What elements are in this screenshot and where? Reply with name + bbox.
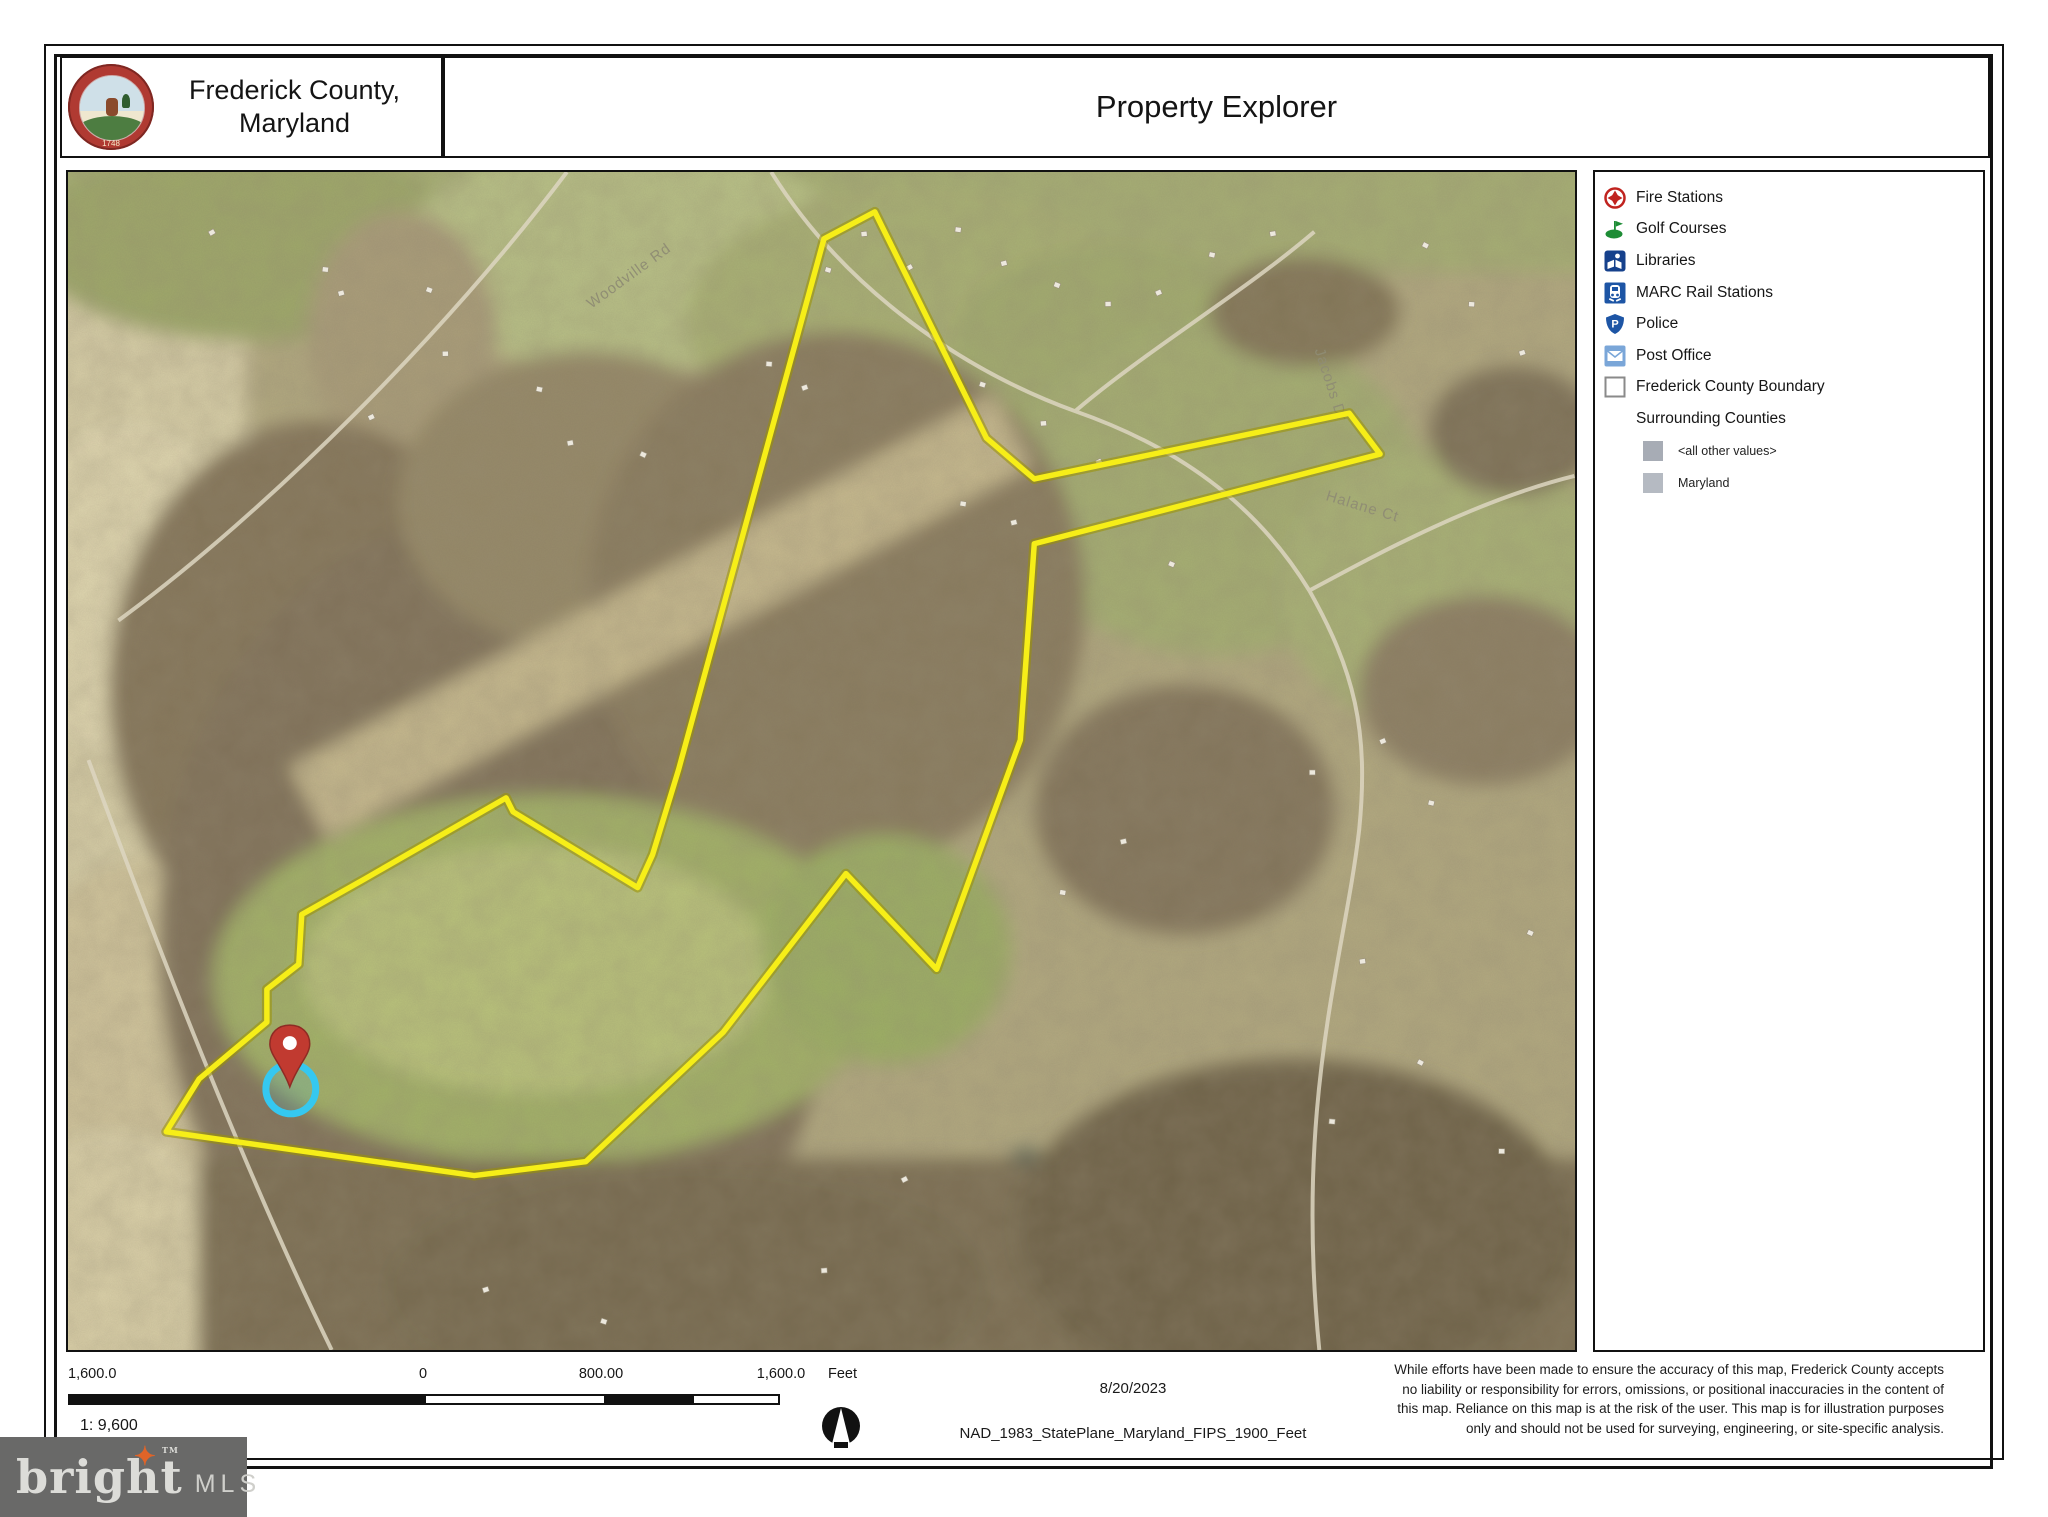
seal-year: 1748 bbox=[68, 139, 154, 148]
golf-courses-icon bbox=[1603, 217, 1627, 241]
location-pin bbox=[266, 1025, 316, 1114]
county-boundary-icon bbox=[1603, 375, 1627, 399]
legend-item-golf-courses: Golf Courses bbox=[1603, 214, 1983, 246]
mls-suffix: MLS bbox=[195, 1470, 261, 1499]
legend-panel: Fire Stations Golf Courses Libraries bbox=[1593, 170, 1985, 1352]
legend-subitem-all-other-values: <all other values> bbox=[1603, 435, 1983, 467]
scale-label-800: 800.00 bbox=[561, 1366, 641, 1382]
scale-bar-segment bbox=[604, 1396, 693, 1403]
legend-item-fire-stations: Fire Stations bbox=[1603, 182, 1983, 214]
maryland-swatch bbox=[1643, 473, 1663, 493]
star-icon: ✦ bbox=[134, 1444, 157, 1470]
page-title: Property Explorer bbox=[1096, 89, 1337, 125]
header-title-box: Property Explorer bbox=[443, 56, 1990, 158]
disclaimer-text: While efforts have been made to ensure t… bbox=[1384, 1360, 1944, 1438]
county-seal-icon: 1748 bbox=[68, 64, 154, 150]
trademark-symbol: TM bbox=[162, 1446, 179, 1454]
scale-label-1600: 1,600.0 bbox=[731, 1366, 831, 1382]
scale-unit-label: Feet bbox=[828, 1366, 857, 1382]
bright-mls-wordmark: bright ✦ TM bbox=[16, 1454, 183, 1500]
svg-text:P: P bbox=[1611, 319, 1618, 331]
scale-label-zero: 0 bbox=[403, 1366, 443, 1382]
police-icon: P bbox=[1603, 312, 1627, 336]
post-office-icon bbox=[1603, 344, 1627, 368]
legend-item-police: P Police bbox=[1603, 308, 1983, 340]
property-explorer-page: 1748 Frederick County, Maryland Property… bbox=[0, 0, 2048, 1517]
fire-stations-icon bbox=[1603, 186, 1627, 210]
legend-subitem-maryland: Maryland bbox=[1603, 467, 1983, 499]
scale-bar-segment bbox=[692, 1396, 778, 1403]
projection-text: NAD_1983_StatePlane_Maryland_FIPS_1900_F… bbox=[933, 1425, 1333, 1442]
scale-bar bbox=[68, 1394, 780, 1405]
legend-item-libraries: Libraries bbox=[1603, 245, 1983, 277]
legend-item-county-boundary: Frederick County Boundary bbox=[1603, 372, 1983, 404]
scale-bar-segment bbox=[424, 1396, 604, 1403]
bright-mls-logo: bright ✦ TM MLS bbox=[0, 1437, 247, 1517]
legend-item-surrounding-counties: Surrounding Counties bbox=[1603, 403, 1983, 435]
legend-item-marc-rail: MARC Rail Stations bbox=[1603, 277, 1983, 309]
header-county-box: 1748 Frederick County, Maryland bbox=[60, 56, 443, 158]
terrain-grain bbox=[69, 172, 1575, 1350]
marc-rail-icon bbox=[1603, 281, 1627, 305]
north-arrow-icon bbox=[820, 1404, 864, 1450]
libraries-icon bbox=[1603, 249, 1627, 273]
county-name: Frederick County, Maryland bbox=[154, 74, 435, 140]
scale-label-left: 1,600.0 bbox=[68, 1366, 116, 1382]
legend-item-post-office: Post Office bbox=[1603, 340, 1983, 372]
scale-bar-segment bbox=[70, 1396, 424, 1403]
no-icon bbox=[1603, 407, 1627, 431]
map-date: 8/20/2023 bbox=[1033, 1380, 1233, 1397]
all-other-values-swatch bbox=[1643, 441, 1663, 461]
map-canvas[interactable]: Woodville Rd Jacobs Dr Halane Ct bbox=[66, 170, 1577, 1352]
scale-ratio: 1: 9,600 bbox=[80, 1417, 138, 1435]
